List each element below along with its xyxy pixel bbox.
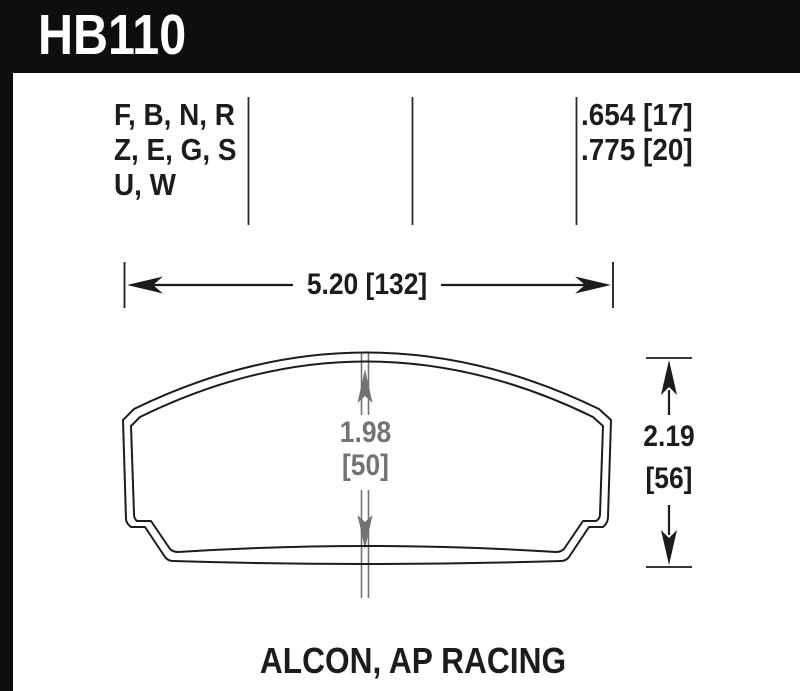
arrow-up-icon bbox=[661, 360, 677, 395]
width-dimension-label: 5.20 [132] bbox=[297, 269, 438, 301]
pad-height-inches-label: 1.98 bbox=[330, 417, 401, 448]
pad-thickness-values: .654 [17] .775 [20] bbox=[581, 97, 693, 167]
overall-height-inches-label: 2.19 bbox=[634, 421, 704, 452]
compound-codes: F, B, N, R Z, E, G, S U, W bbox=[114, 97, 236, 202]
applications-label: ALCON, AP RACING bbox=[237, 642, 589, 680]
overall-height-mm-label: [56] bbox=[634, 463, 704, 494]
brake-pad-spec-sheet: HB110 bbox=[0, 0, 800, 691]
pad-height-mm-label: [50] bbox=[330, 450, 401, 481]
spec-table-dividers bbox=[249, 97, 577, 225]
arrow-up-icon bbox=[358, 369, 373, 403]
arrow-down-icon bbox=[661, 530, 677, 565]
arrow-down-icon bbox=[358, 515, 373, 549]
